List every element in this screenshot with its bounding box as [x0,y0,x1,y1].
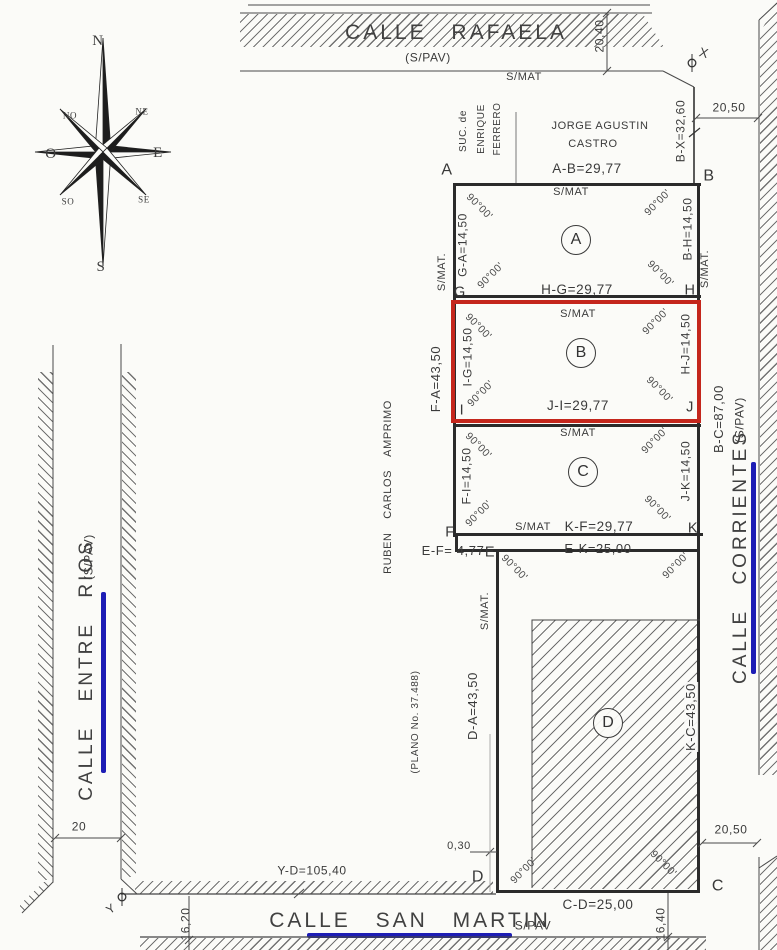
hatch-west-street-outer [38,372,53,880]
corner-k: K [688,521,698,536]
corner-i: I [460,403,465,418]
dim-yd: Y-D=105,40 [277,865,346,878]
dim-bc: B-C=87,00 [712,385,726,453]
angle-c-tr: 90°00' [640,426,670,456]
corner-a: A [441,163,452,180]
corner-b: B [703,169,714,186]
dim-ga: G-A=14,50 [457,213,470,277]
angle-a-tr: 90°00' [643,188,673,218]
owner-castro-line2: CASTRO [568,139,617,151]
dim-jk: J-K=14,50 [680,441,693,501]
dim-hg: H-G=29,77 [541,283,613,297]
boundary-east [697,183,700,893]
compass-e: E [153,146,163,162]
dim-ig: I-G=14,50 [462,327,475,386]
lot-b-label: B [566,338,596,368]
corner-e: E [485,545,495,560]
corner-c: C [712,879,724,896]
dim-rafaela-width: 20,40 [594,19,607,52]
corner-j: J [686,400,694,415]
dim-da: D-A=43,50 [466,672,480,740]
boundary-lot-c-top [453,424,701,427]
plano-reference: (PLANO No. 37.488) [411,670,422,773]
street-surface-entre-rios: (S/PAV) [83,534,96,580]
corner-y: Y [104,901,118,916]
dim-kc: K-C=43,50 [684,682,698,752]
street-axis-san-martin [307,933,512,938]
dim-cd: C-D=25,00 [562,898,633,912]
dim-fi: F-I=14,50 [461,447,474,504]
hatch-yd-line [135,881,493,894]
owner-amprimo: RUBEN CARLOS AMPRIMO [383,400,395,574]
dim-bx: B-X=32,60 [675,100,688,162]
compass-no: NO [63,111,77,120]
lot-a-smat: S/MAT [553,187,589,199]
lot-d-smat-west: S/MAT. [480,592,492,630]
street-surface-corrientes: (S/PAV) [734,397,747,443]
dim-kf: K-F=29,77 [565,520,634,534]
lot-c-smat: S/MAT [560,428,596,440]
compass-so: SO [62,197,75,206]
hatch-west-street-corner [20,882,54,914]
dim-ji: J-I=29,77 [547,399,609,413]
owner-ferrero-line2: ENRIQUE [477,104,488,154]
hatch-west-street-inner [122,372,136,877]
angle-a-br: 90°00' [645,259,675,289]
lot-a-smat-east: S/MAT. [700,250,712,288]
compass-s: S [97,260,106,276]
angle-e: 90°00' [499,553,529,583]
rafaela-smat-label: S/MAT [506,72,542,84]
street-name-san-martin: CALLE SAN MARTIN [269,910,551,932]
dim-entre-rios-width: 20 [72,821,87,834]
compass-n: N [92,34,103,50]
lot-c-smat-south: S/MAT [515,522,551,534]
hatch-east-street-edge [760,2,777,775]
street-axis-entre-rios [101,592,106,773]
owner-ferrero-line3: FERRERO [493,102,504,155]
dim-offset-se: 20,50 [714,824,747,837]
compass-ne: NE [135,107,148,116]
compass-o: O [45,147,56,163]
corner-f: F [445,525,454,540]
dim-ek: E-K=25,00 [564,542,631,556]
dim-sw: 16,20 [180,907,193,940]
angle-c-br: 90°00' [642,494,672,524]
survey-plan: N S O E NO NE SO SE CALLE RAFAELA (S/PAV… [0,0,777,950]
lot-a-smat-west: S/MAT. [437,253,449,291]
lot-a-label: A [561,225,591,255]
boundary-lot-d-west [496,549,499,893]
corner-d: D [472,870,484,887]
lot-d-label: D [593,708,623,738]
owner-castro-line1: JORGE AGUSTIN [551,121,648,133]
lot-b-smat: S/MAT [560,309,596,321]
dim-ab: A-B=29,77 [552,162,622,176]
street-surface-rafaela: (S/PAV) [405,52,451,65]
street-name-corrientes: CALLE CORRIENTES [731,430,751,684]
dim-bh: B-H=14,50 [682,197,695,260]
dim-offset-ne: 20,50 [712,102,745,115]
hatch-east-street-edge-south [760,857,777,950]
corner-h: H [684,283,695,298]
street-surface-san-martin: S/PAV [515,920,552,933]
owner-ferrero-line1: SUC. de [459,110,470,152]
hatch-south-street-edge [140,938,706,950]
angle-a-bl: 90°00' [476,261,506,291]
hatch-lot-d [532,620,700,889]
boundary-lot-d-south [496,890,700,893]
angle-k-south: 90°00' [661,551,691,581]
street-name-rafaela: CALLE RAFAELA [345,22,567,44]
dim-ef: E-F= 4,77 [422,544,485,558]
corner-x: X [698,45,710,61]
street-axis-corrientes [751,462,756,674]
dim-hj: H-J=14,50 [680,313,693,374]
dim-wall-offset: 0,30 [447,841,471,853]
corner-g: G [454,285,466,300]
dim-fa: F-A=43,50 [429,346,443,412]
lot-c-label: C [568,457,598,487]
dim-se: 16,40 [655,907,668,940]
compass-se: SE [138,195,150,204]
